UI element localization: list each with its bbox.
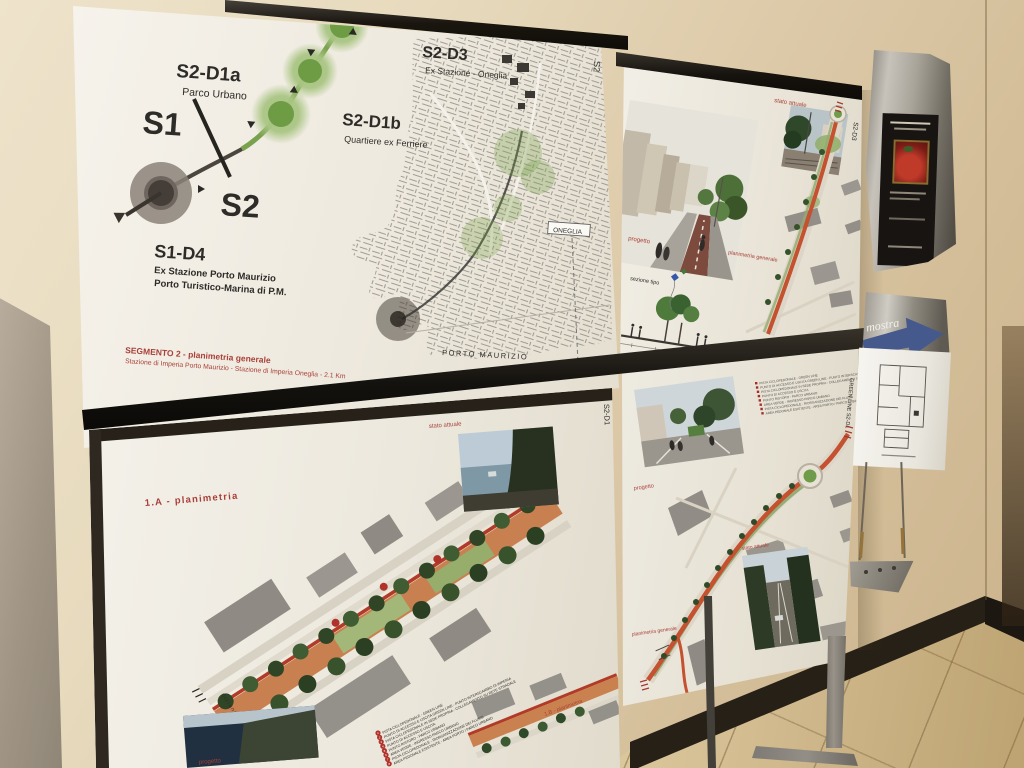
- wall-corner-line: [985, 0, 987, 600]
- poster-edge-label-s2: S2: [592, 61, 602, 72]
- doorway-shadow: [1002, 326, 1024, 626]
- section-label: sezione tipo: [630, 276, 660, 287]
- terminus-code: S1-D4: [154, 241, 206, 265]
- plan-drawing-1b: [458, 648, 625, 768]
- brochure-holder: [864, 48, 958, 276]
- hanging-bracket: [846, 462, 916, 612]
- poster-edge-label-s2d1: S2-D1: [602, 404, 612, 426]
- stop-s2d1a-code: S2-D1a: [176, 61, 242, 86]
- photo-progetto: [183, 706, 319, 768]
- kite-icon: [670, 273, 679, 282]
- wall-pillar-left: [0, 286, 66, 768]
- render-label-progetto: progetto: [633, 483, 654, 492]
- floorplan-drawing: [853, 348, 951, 471]
- plan-label: planimetria generale: [631, 626, 677, 638]
- board-frame-left: [89, 429, 109, 768]
- stop-s2d1a-name: Parco Urbano: [182, 86, 248, 103]
- photo-stato-attuale: [742, 547, 821, 650]
- city-map: ONEGLIA PORTO MAURIZIO: [352, 33, 612, 363]
- flyer[interactable]: [877, 113, 938, 267]
- photo-stato-attuale: [458, 427, 559, 512]
- label-s2: S2: [220, 186, 262, 225]
- exhibition-room-photo: ONEGLIA PORTO MAURIZIO: [0, 0, 1024, 768]
- stop-s2d1b-code: S2-D1b: [342, 110, 402, 133]
- stop-s2d3-code: S2-D3: [422, 44, 469, 64]
- poster-detail-1a: PORTO MAURIZIO 1.A - planimetria 1.B - p…: [83, 376, 625, 768]
- photo-label-stato-attuale: stato attuale: [429, 421, 463, 430]
- label-s1: S1: [142, 104, 184, 143]
- poster-detail-s2d1: PISTA CICLOPEDONALE - GREEN LINE PUNTO D…: [616, 338, 864, 714]
- floorplan-sheet[interactable]: [853, 348, 951, 471]
- poster-edge-label-s2d3: S2-D3: [850, 122, 859, 142]
- render-photo: [634, 376, 744, 467]
- poster-title-1a: 1.A - planimetria: [144, 491, 239, 509]
